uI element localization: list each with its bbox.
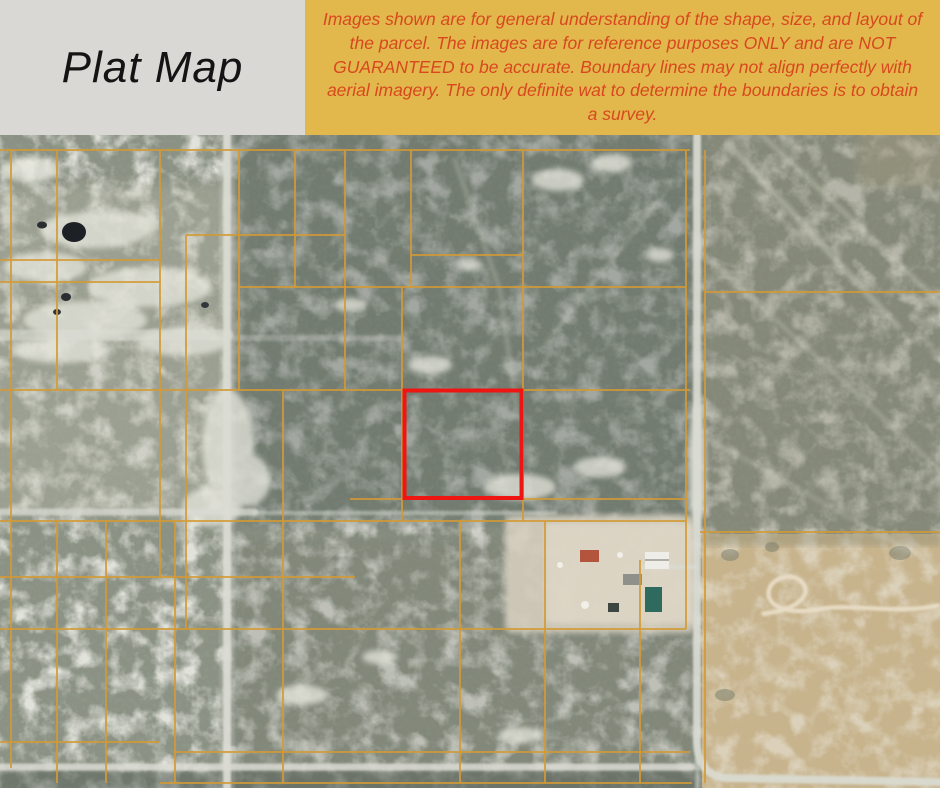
tan-field — [702, 530, 940, 788]
aerial-map — [0, 135, 940, 788]
page-title: Plat Map — [62, 43, 244, 93]
dark-shed — [608, 603, 619, 612]
farm-compound-ground — [505, 515, 695, 633]
bottom-scrub-band — [0, 771, 700, 788]
teal-building — [645, 587, 662, 612]
disclaimer-text: Images shown are for general understandi… — [321, 8, 925, 127]
plat-map-flyer: Plat Map Images shown are for general un… — [0, 0, 940, 788]
aerial-map-canvas — [0, 135, 940, 788]
red-roof-building — [580, 550, 599, 562]
disclaimer-panel: Images shown are for general understandi… — [305, 0, 940, 135]
header: Plat Map Images shown are for general un… — [0, 0, 940, 135]
title-panel: Plat Map — [0, 0, 305, 135]
